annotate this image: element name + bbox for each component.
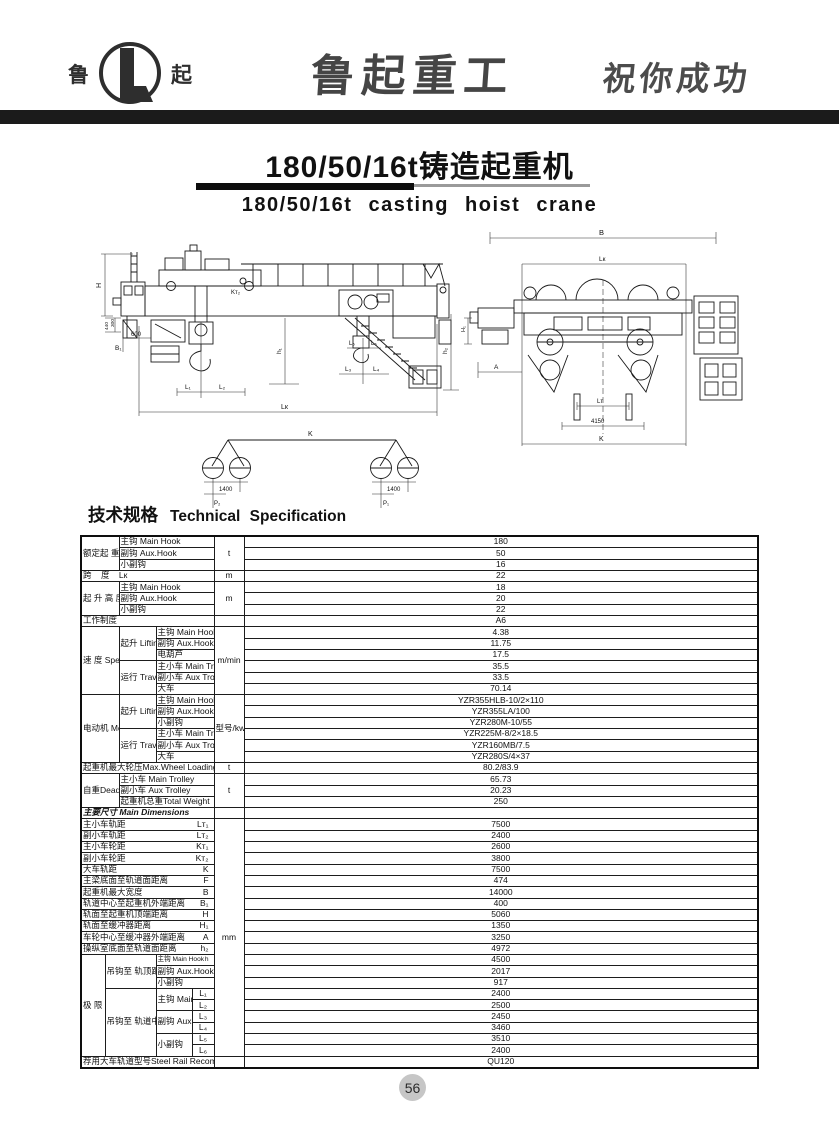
spec-unit-cell: 型号/kw Type/kw: [214, 695, 244, 763]
dim-label-L6: L₆: [371, 341, 377, 347]
spec-value-cell: 2600: [244, 842, 758, 853]
spec-value-cell: 3460: [244, 1022, 758, 1033]
spec-label-cell: 主钩 Main Hook: [119, 536, 214, 548]
spec-row: Kт₂副小车轮距3800: [81, 853, 758, 864]
title-underline-light: [414, 184, 590, 187]
spec-label-cell: 副钩 Aux.Hook: [119, 593, 214, 604]
dim-label-h2: h₂: [442, 347, 449, 354]
dim-label-300: 300: [110, 319, 116, 327]
spec-value-cell: 11.75: [244, 638, 758, 649]
page-title-zh: 180/50/16t铸造起重机: [0, 142, 839, 186]
spec-value-cell: 2400: [244, 1045, 758, 1056]
spec-row: 副钩 Aux.Hook20: [81, 593, 758, 604]
dim-name: 操纵室底面至轨道面距离: [83, 943, 177, 953]
spec-label-cell: 跨 度 Lк: [81, 570, 214, 581]
spec-label-cell: 电动机 Motor: [81, 695, 119, 763]
spec-value-cell: 80.2/83.9: [244, 762, 758, 773]
spec-row: 电动机 Motor起升 Lifting主钩 Main Hook型号/kw Typ…: [81, 695, 758, 706]
spec-row: 小副钩YZR280M-10/55: [81, 717, 758, 728]
spec-label-cell: H轨面至起重机顶端距离: [81, 909, 214, 920]
spec-label-cell: 主小车 Main Trolley: [156, 661, 214, 672]
spec-row: 小副钩16: [81, 559, 758, 570]
spec-row: B起重机最大宽度14000: [81, 887, 758, 898]
spec-row: F主梁底面至轨道面距离474: [81, 875, 758, 886]
dim-name: 大车轨距: [83, 864, 117, 874]
spec-row: 小副钩22: [81, 604, 758, 615]
spec-value-cell: 400: [244, 898, 758, 909]
dim-label-K: K: [308, 431, 313, 438]
page-number-badge: 56: [399, 1074, 426, 1101]
spec-row: 电葫芦17.5: [81, 649, 758, 660]
dim-label-L5: L₅: [349, 341, 355, 347]
spec-row: 小副钩917: [81, 977, 758, 988]
spec-row: B₁轨道中心至起重机外端距离400: [81, 898, 758, 909]
spec-value-cell: 14000: [244, 887, 758, 898]
section-heading-zh: 技术规格: [88, 502, 158, 527]
dim-label-P1: P₁: [383, 501, 389, 507]
spec-label-cell: 副小车 Aux Trolley: [156, 672, 214, 683]
spec-unit-cell: t: [214, 762, 244, 773]
dim-name: 轨道中心至起重机外端距离: [83, 898, 185, 908]
dim-symbol: h₂: [200, 944, 212, 954]
spec-value-cell: 4500: [244, 954, 758, 965]
dim-label-H: H: [96, 283, 103, 288]
spec-row: 速 度 Speed起升 Lifting主钩 Main Hookm/min4.38: [81, 627, 758, 638]
spec-value-cell: 70.14: [244, 683, 758, 694]
logo-L-icon: [93, 36, 167, 112]
dim-symbol: Lт₂: [197, 831, 213, 841]
spec-label-cell: 主小车 Main Trolley: [119, 774, 214, 785]
spec-label-cell: 小副钩: [156, 1034, 192, 1057]
spec-row: 副钩 Aux.Hook50: [81, 548, 758, 559]
spec-value-cell: 16: [244, 559, 758, 570]
dim-name: 主小车轨距: [83, 819, 126, 829]
spec-label-cell: h主钩 Main Hook: [156, 954, 214, 965]
spec-label-cell: 主钩 Main Hook: [156, 695, 214, 706]
spec-label-cell: 主小车 Main Trolley: [156, 729, 214, 740]
dim-symbol: A: [203, 933, 213, 943]
spec-value-cell: 3800: [244, 853, 758, 864]
spec-label-cell: 副钩 Aux.Hook: [156, 1011, 192, 1034]
spec-value-cell: 22: [244, 604, 758, 615]
dim-label-440: 440: [104, 322, 110, 330]
spec-value-cell: 3510: [244, 1034, 758, 1045]
spec-value-cell: 2450: [244, 1011, 758, 1022]
spec-label-cell: L₅: [192, 1034, 214, 1045]
dim-symbol: H: [202, 910, 212, 920]
dim-name: 轨面至缓冲器距离: [83, 921, 151, 931]
spec-row: 起重机最大轮压Max.Wheel Loading P₁/P₂t80.2/83.9: [81, 762, 758, 773]
spec-label-cell: Lт₂副小车轨距: [81, 830, 214, 841]
spec-value-cell: 22: [244, 570, 758, 581]
dim-name: 主钩 Main Hook: [158, 956, 205, 963]
spec-row: 起 升 高 度主钩 Main Hookm18: [81, 582, 758, 593]
spec-unit-cell: m: [214, 570, 244, 581]
spec-unit-cell: m/min: [214, 627, 244, 695]
spec-value-cell: 250: [244, 796, 758, 807]
spec-value-cell: YZR225M-8/2×18.5: [244, 729, 758, 740]
spec-label-cell: 副钩 Aux.Hook: [156, 638, 214, 649]
spec-label-cell: K大车轨距: [81, 864, 214, 875]
spec-label-cell: 起升 Lifting: [119, 627, 156, 661]
spec-row: 大车YZR280S/4×37: [81, 751, 758, 762]
spec-row: 极 限 位 置吊钩至 轨顶距离h主钩 Main Hook4500: [81, 954, 758, 965]
spec-label-cell: 电葫芦: [156, 649, 214, 660]
spec-row: 起重机总重Total Weight250: [81, 796, 758, 807]
spec-value-cell: 65.73: [244, 774, 758, 785]
spec-label-cell: 工作制度: [81, 616, 214, 627]
company-logo: 鲁 起: [68, 36, 192, 112]
dim-label-4150: 4150: [591, 419, 605, 425]
spec-row: 副钩 Aux.Hook11.75: [81, 638, 758, 649]
spec-label-cell: 小副钩: [119, 559, 214, 570]
spec-table-body: 额定起 重量Cap.主钩 Main Hookt180副钩 Aux.Hook50小…: [81, 536, 758, 1068]
dim-name: 副小车轨距: [83, 830, 126, 840]
dim-label-Lk: Lк: [281, 404, 289, 411]
spec-label-cell: 小副钩: [119, 604, 214, 615]
spec-value-cell: 18: [244, 582, 758, 593]
spec-label-cell: 大车: [156, 683, 214, 694]
dim-label-B: B: [599, 228, 604, 237]
spec-row: 副钩 Aux.Hook2017: [81, 966, 758, 977]
dim-label-H1: H₁: [461, 326, 467, 332]
spec-row: 副钩 Aux.HookL₃2450: [81, 1011, 758, 1022]
spec-label-cell: 吊钩至 轨顶距离: [105, 954, 156, 988]
spec-row: 副小车 Aux TrolleyYZR160MB/7.5: [81, 740, 758, 751]
dim-symbol: Kт₂: [196, 854, 213, 864]
spec-value-cell: 4.38: [244, 627, 758, 638]
section-heading: 技术规格 Technical Specification: [88, 502, 346, 527]
spec-label-cell: L₃: [192, 1011, 214, 1022]
spec-label-cell: 小副钩: [156, 977, 214, 988]
spec-unit-cell: [214, 808, 244, 819]
title-underline: [196, 183, 590, 191]
dim-symbol: Kт₁: [196, 842, 212, 852]
spec-value-cell: 33.5: [244, 672, 758, 683]
spec-label-cell: 副钩 Aux.Hook: [119, 548, 214, 559]
spec-label-cell: 起 升 高 度: [81, 582, 119, 616]
spec-value-cell: 7500: [244, 819, 758, 830]
end-view-drawing: B Lк H₁ A Lт 4150 K: [458, 222, 773, 450]
spec-row: h₂操纵室底面至轨道面距离4972: [81, 943, 758, 954]
spec-label-cell: 主钩 Main Hook: [156, 988, 192, 1011]
axle-load-diagram: K 1400 1400 P₂ P₁: [180, 424, 445, 510]
spec-value-cell: 5060: [244, 909, 758, 920]
spec-value-cell: 17.5: [244, 649, 758, 660]
dim-label-L1: L₁: [185, 384, 192, 391]
spec-row: 小副钩L₅3510: [81, 1034, 758, 1045]
spec-label-cell: 荐用大车轨道型号Steel Rail Recommended: [81, 1056, 214, 1068]
spec-unit-cell: [214, 1056, 244, 1068]
dim-label-A: A: [494, 364, 499, 371]
spec-value-cell: 50: [244, 548, 758, 559]
dim-symbol: H₁: [200, 921, 213, 931]
spec-row: 额定起 重量Cap.主钩 Main Hookt180: [81, 536, 758, 548]
spec-unit-cell: mm: [214, 819, 244, 1056]
spec-unit-cell: t: [214, 536, 244, 570]
spec-row: 荐用大车轨道型号Steel Rail RecommendedQU120: [81, 1056, 758, 1068]
spec-value-cell: YZR355HLB-10/2×110: [244, 695, 758, 706]
spec-unit-cell: t: [214, 774, 244, 808]
spec-label-cell: 运行 Traveling: [119, 661, 156, 695]
spec-value-cell: A6: [244, 616, 758, 627]
spec-value-cell: 2017: [244, 966, 758, 977]
spec-label-cell: 极 限 位 置: [81, 954, 105, 1056]
section-heading-en: Technical Specification: [170, 508, 346, 526]
spec-value-cell: 180: [244, 536, 758, 548]
spec-row: Lт₁主小车轨距mm7500: [81, 819, 758, 830]
spec-value-cell: YZR355LA/100: [244, 706, 758, 717]
spec-value-cell: 2400: [244, 830, 758, 841]
spec-value-cell: 20.23: [244, 785, 758, 796]
spec-label-cell: Lт₁主小车轨距: [81, 819, 214, 830]
spec-row: 跨 度 Lкm22: [81, 570, 758, 581]
spec-label-cell: 副小车 Aux Trolley: [119, 785, 214, 796]
spec-label-cell: L₁: [192, 988, 214, 999]
dim-label-gauge-left: 1400: [219, 487, 233, 493]
dim-label-Lk: Lк: [599, 256, 606, 263]
spec-value-cell: 474: [244, 875, 758, 886]
slogan-calligraphy: 祝你成功: [569, 52, 784, 100]
dim-label-600: 600: [131, 332, 142, 338]
spec-label-cell: F主梁底面至轨道面距离: [81, 875, 214, 886]
spec-row: 副钩 Aux.HookYZR355LA/100: [81, 706, 758, 717]
dim-name: 主梁底面至轨道面距离: [83, 875, 168, 885]
spec-label-cell: 主钩 Main Hook: [156, 627, 214, 638]
dim-symbol: h: [205, 955, 213, 965]
spec-label-cell: 速 度 Speed: [81, 627, 119, 695]
spec-label-cell: 小副钩: [156, 717, 214, 728]
dim-name: 起重机最大宽度: [83, 887, 143, 897]
dim-name: 主小车轮距: [83, 842, 126, 852]
spec-label-cell: 副钩 Aux.Hook: [156, 966, 214, 977]
spec-value-cell: 4972: [244, 943, 758, 954]
dim-label-Lt: Lт: [597, 399, 603, 405]
spec-row: Kт₁主小车轮距2600: [81, 842, 758, 853]
dim-label-L3: L₃: [345, 366, 352, 373]
spec-label-cell: B起重机最大宽度: [81, 887, 214, 898]
spec-label-cell: h₂操纵室底面至轨道面距离: [81, 943, 214, 954]
spec-value-cell: 917: [244, 977, 758, 988]
dim-label-K: K: [599, 436, 604, 443]
dim-label-Kt2: Kт₂: [231, 290, 241, 296]
spec-value-cell: YZR280S/4×37: [244, 751, 758, 762]
brand-calligraphy: 鲁起重工: [286, 40, 540, 104]
dim-symbol: Lт₁: [197, 820, 213, 830]
spec-value-cell: 35.5: [244, 661, 758, 672]
spec-label-cell: 起升 Lifting: [119, 695, 156, 729]
dim-label-B1: B₁: [115, 345, 122, 352]
page-number: 56: [405, 1080, 421, 1096]
dim-label-L2: L₂: [219, 384, 226, 391]
spec-row: 副小车 Aux Trolley33.5: [81, 672, 758, 683]
spec-value-cell: [244, 808, 758, 819]
spec-row: A车轮中心至缓冲器外端距离3250: [81, 932, 758, 943]
spec-label-cell: 副钩 Aux.Hook: [156, 706, 214, 717]
title-underline-dark: [196, 183, 414, 190]
spec-label-cell: L₄: [192, 1022, 214, 1033]
dim-name: 车轮中心至缓冲器外端距离: [83, 932, 185, 942]
spec-row: 工作制度A6: [81, 616, 758, 627]
spec-row: 运行 Traveling主小车 Main TrolleyYZR225M-8/2×…: [81, 729, 758, 740]
page-title-en: 180/50/16t casting hoist crane: [0, 194, 839, 217]
spec-label-cell: 大车: [156, 751, 214, 762]
dim-label-L4: L₄: [373, 366, 380, 373]
spec-row: H轨面至起重机顶端距离5060: [81, 909, 758, 920]
dim-label-gauge-right: 1400: [387, 487, 401, 493]
spec-row: 吊钩至 轨道中 心距离主钩 Main HookL₁2400: [81, 988, 758, 999]
front-elevation-drawing: H 300 440 B₁ 600 Kт₂ h₁ h₂ L₁ L₂ L₃ L₄ L…: [93, 226, 473, 424]
spec-row: 副小车 Aux Trolley20.23: [81, 785, 758, 796]
spec-row: Lт₂副小车轨距2400: [81, 830, 758, 841]
spec-value-cell: 3250: [244, 932, 758, 943]
spec-label-cell: 主钩 Main Hook: [119, 582, 214, 593]
dim-name: 轨面至起重机顶端距离: [83, 909, 168, 919]
spec-value-cell: YZR160MB/7.5: [244, 740, 758, 751]
spec-value-cell: 2500: [244, 1000, 758, 1011]
spec-value-cell: 7500: [244, 864, 758, 875]
logo-right-char: 起: [171, 59, 192, 89]
spec-label-cell: 自重Dead- Weight: [81, 774, 119, 808]
spec-unit-cell: m: [214, 582, 244, 616]
dim-symbol: B₁: [200, 899, 213, 909]
spec-label-cell: Kт₁主小车轮距: [81, 842, 214, 853]
spec-label-cell: B₁轨道中心至起重机外端距离: [81, 898, 214, 909]
spec-label-cell: A车轮中心至缓冲器外端距离: [81, 932, 214, 943]
spec-label-cell: 吊钩至 轨道中 心距离: [105, 988, 156, 1056]
spec-value-cell: 1350: [244, 921, 758, 932]
dim-name: 副小车轮距: [83, 853, 126, 863]
spec-row: K大车轨距7500: [81, 864, 758, 875]
spec-unit-cell: [214, 616, 244, 627]
spec-row: 自重Dead- Weight主小车 Main Trolleyt65.73: [81, 774, 758, 785]
spec-label-cell: 主要尺寸 Main Dimensions: [81, 808, 214, 819]
spec-row: H₁轨面至缓冲器距离1350: [81, 921, 758, 932]
header-divider-bar: [0, 110, 839, 124]
spec-row: 大车70.14: [81, 683, 758, 694]
spec-label-cell: 额定起 重量Cap.: [81, 536, 119, 570]
dim-symbol: K: [203, 865, 213, 875]
dim-symbol: B: [203, 888, 213, 898]
spec-row: 运行 Traveling主小车 Main Trolley35.5: [81, 661, 758, 672]
spec-label-cell: 起重机总重Total Weight: [119, 796, 214, 807]
spec-label-cell: 副小车 Aux Trolley: [156, 740, 214, 751]
spec-value-cell: 2400: [244, 988, 758, 999]
logo-left-char: 鲁: [68, 59, 89, 89]
spec-value-cell: 20: [244, 593, 758, 604]
spec-label-cell: H₁轨面至缓冲器距离: [81, 921, 214, 932]
spec-label-cell: L₆: [192, 1045, 214, 1056]
spec-row: 主要尺寸 Main Dimensions: [81, 808, 758, 819]
dim-symbol: F: [203, 876, 212, 886]
technical-specification-table: 额定起 重量Cap.主钩 Main Hookt180副钩 Aux.Hook50小…: [80, 535, 759, 1069]
spec-label-cell: Kт₂副小车轮距: [81, 853, 214, 864]
spec-label-cell: 运行 Traveling: [119, 729, 156, 763]
spec-label-cell: L₂: [192, 1000, 214, 1011]
spec-value-cell: YZR280M-10/55: [244, 717, 758, 728]
spec-value-cell: QU120: [244, 1056, 758, 1068]
spec-label-cell: 起重机最大轮压Max.Wheel Loading P₁/P₂: [81, 762, 214, 773]
dim-label-h1: h₁: [276, 347, 283, 354]
spec-table-container: 额定起 重量Cap.主钩 Main Hookt180副钩 Aux.Hook50小…: [80, 535, 759, 1069]
